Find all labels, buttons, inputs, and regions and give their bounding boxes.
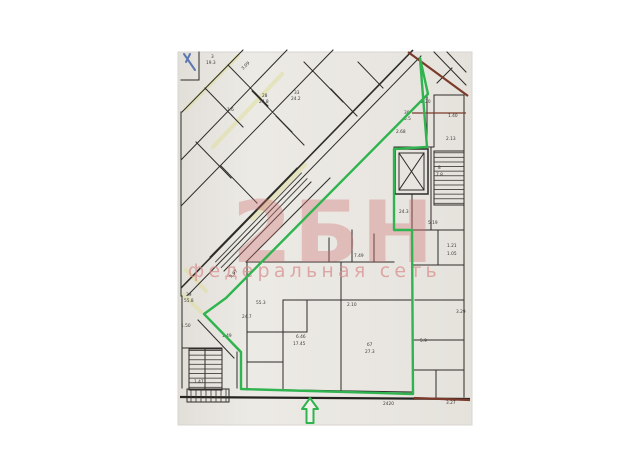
dimension-label: 24.7: [242, 314, 252, 320]
dimension-label: 24.2: [291, 96, 301, 102]
floor-plan-scan: 2БН федеральная сеть 319.32824.83324.21.…: [0, 0, 620, 465]
entry-stair: [187, 389, 229, 402]
dimension-label: 1.21: [447, 243, 457, 249]
dimension-label: 5.19: [428, 220, 438, 226]
dimension-label: 27.3: [365, 349, 375, 355]
dimension-label: 2.68: [396, 129, 406, 135]
dimension-label: 8: [438, 165, 441, 171]
dimension-label: 1.40: [448, 113, 458, 119]
dimension-label: 5.9: [420, 338, 427, 344]
watermark-tagline: федеральная сеть: [188, 260, 441, 282]
dimension-label: 29: [186, 292, 192, 298]
dimension-label: 3.27: [446, 400, 456, 406]
dimension-label: 28: [262, 93, 268, 99]
dimension-label: 24.8: [259, 99, 269, 105]
dimension-label: 19.3: [206, 60, 216, 66]
dimension-label: 2.10: [347, 302, 357, 308]
screenshot-root: 2БН федеральная сеть 319.32824.83324.21.…: [0, 0, 620, 465]
dimension-label: 55.8: [184, 298, 194, 304]
dimension-label: б7: [367, 342, 373, 348]
dimension-label: 1.6: [227, 107, 234, 113]
dimension-label: 1.05: [447, 251, 457, 257]
dimension-label: 7.8: [436, 172, 443, 178]
dimension-label: 6.46: [296, 334, 306, 340]
dimension-label: 2420: [383, 401, 394, 407]
dimension-label: 33: [294, 90, 300, 96]
dimension-label: 24.3: [399, 209, 409, 215]
dimension-label: 3: [211, 54, 214, 60]
dimension-label: 55.3: [256, 300, 266, 306]
right-stairwell: [434, 151, 464, 205]
dimension-label: 7.49: [354, 253, 364, 259]
dimension-label: 2.13: [446, 136, 456, 142]
dimension-label: 1.50: [181, 323, 191, 329]
dimension-label: 17.45: [293, 341, 306, 347]
dimension-label: 3.29: [456, 309, 466, 315]
dimension-label: 1.47: [194, 379, 204, 385]
